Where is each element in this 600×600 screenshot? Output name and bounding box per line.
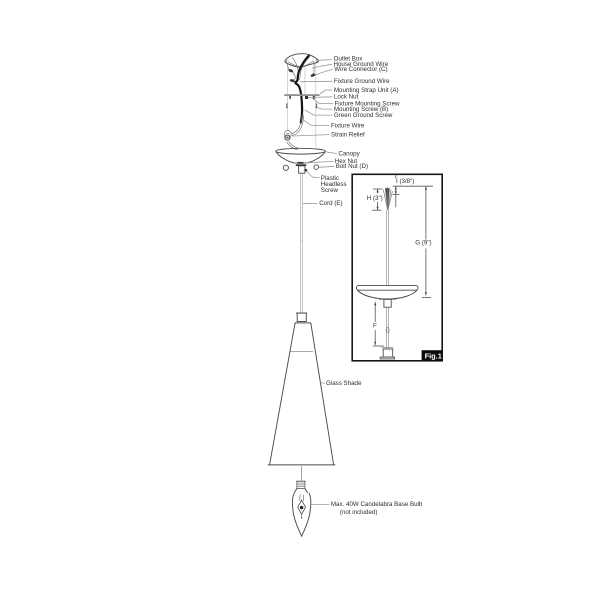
svg-text:Fixture Wire: Fixture Wire	[331, 122, 365, 129]
svg-text:Green Ground Screw: Green Ground Screw	[334, 112, 393, 119]
svg-text:Strain Relief: Strain Relief	[331, 131, 365, 138]
svg-text:Bolt Nut (D): Bolt Nut (D)	[336, 163, 368, 170]
svg-text:Canopy: Canopy	[338, 151, 360, 158]
svg-text:(not included): (not included)	[340, 509, 378, 516]
svg-text:F: F	[373, 323, 377, 330]
svg-text:H (3"): H (3")	[367, 195, 383, 202]
svg-text:Fig.1: Fig.1	[425, 352, 442, 361]
svg-text:Screw: Screw	[321, 187, 339, 194]
svg-text:Wire Connector (C): Wire Connector (C)	[334, 66, 387, 73]
svg-text:Glass Shade: Glass Shade	[326, 380, 362, 387]
svg-text:I (3/8"): I (3/8")	[396, 178, 414, 185]
svg-text:Max. 40W Candelabra Base Bulb: Max. 40W Candelabra Base Bulb	[331, 501, 423, 508]
svg-text:Fixture Ground Wire: Fixture Ground Wire	[334, 78, 390, 85]
svg-text:Cord (E): Cord (E)	[319, 200, 342, 207]
svg-text:G (9"): G (9")	[415, 239, 431, 246]
